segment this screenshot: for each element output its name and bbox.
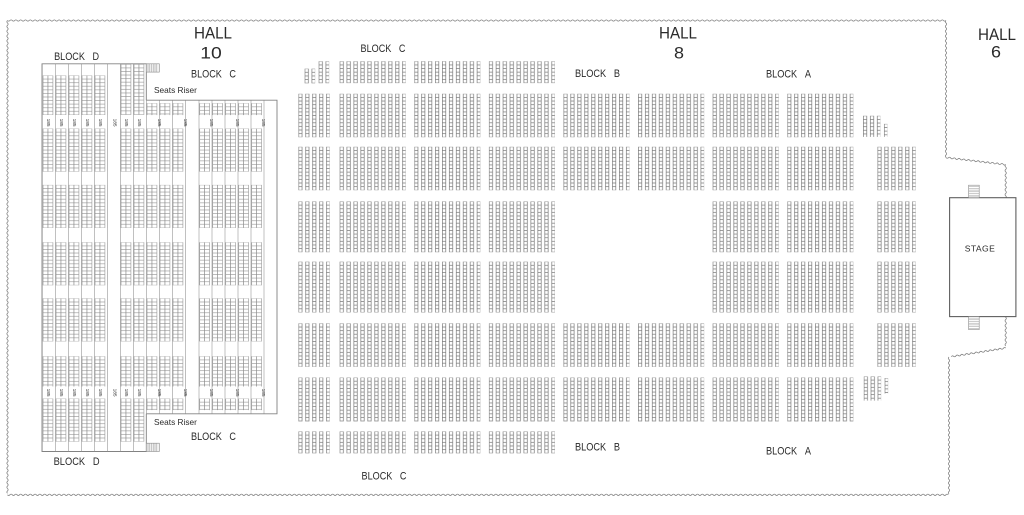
svg-text:185: 185 (123, 389, 129, 397)
svg-text:6: 6 (991, 43, 1001, 62)
svg-text:185: 185 (182, 119, 188, 127)
svg-text:BLOCK C: BLOCK C (361, 43, 406, 55)
svg-text:STAGE: STAGE (965, 243, 996, 253)
svg-text:185: 185 (97, 119, 103, 127)
svg-text:BLOCK C: BLOCK C (191, 69, 236, 81)
svg-text:BLOCK D: BLOCK D (54, 51, 99, 63)
svg-text:185: 185 (234, 389, 240, 397)
svg-text:BLOCK C: BLOCK C (191, 431, 236, 443)
svg-text:185: 185 (123, 119, 129, 127)
svg-text:185: 185 (71, 119, 77, 127)
svg-text:185: 185 (97, 389, 103, 397)
svg-text:185: 185 (182, 389, 188, 397)
svg-text:185: 185 (45, 389, 51, 397)
svg-text:185: 185 (136, 119, 142, 127)
svg-text:185: 185 (58, 119, 64, 127)
svg-text:185: 185 (58, 389, 64, 397)
svg-text:185: 185 (156, 119, 162, 127)
svg-text:HALL: HALL (978, 25, 1016, 44)
svg-text:185: 185 (45, 119, 51, 127)
svg-text:BLOCK C: BLOCK C (362, 471, 407, 483)
svg-text:10: 10 (200, 43, 222, 62)
svg-text:BLOCK D: BLOCK D (54, 456, 100, 468)
svg-text:185: 185 (112, 389, 118, 397)
svg-text:185: 185 (71, 389, 77, 397)
svg-text:185: 185 (234, 119, 240, 127)
svg-text:185: 185 (136, 389, 142, 397)
svg-text:185: 185 (84, 119, 90, 127)
svg-text:185: 185 (208, 389, 214, 397)
svg-text:185: 185 (112, 119, 118, 127)
svg-text:Seats Riser: Seats Riser (154, 85, 197, 95)
svg-text:185: 185 (260, 119, 266, 127)
svg-text:185: 185 (156, 389, 162, 397)
svg-text:BLOCK B: BLOCK B (575, 68, 620, 80)
svg-text:185: 185 (208, 119, 214, 127)
svg-text:185: 185 (84, 389, 90, 397)
svg-text:BLOCK B: BLOCK B (575, 442, 620, 454)
svg-text:HALL: HALL (194, 24, 232, 43)
svg-text:Seats Riser: Seats Riser (154, 417, 197, 427)
svg-text:BLOCK A: BLOCK A (766, 69, 812, 81)
svg-text:HALL: HALL (659, 24, 697, 43)
svg-text:BLOCK A: BLOCK A (766, 446, 812, 458)
svg-text:8: 8 (674, 43, 684, 62)
svg-text:185: 185 (260, 389, 266, 397)
